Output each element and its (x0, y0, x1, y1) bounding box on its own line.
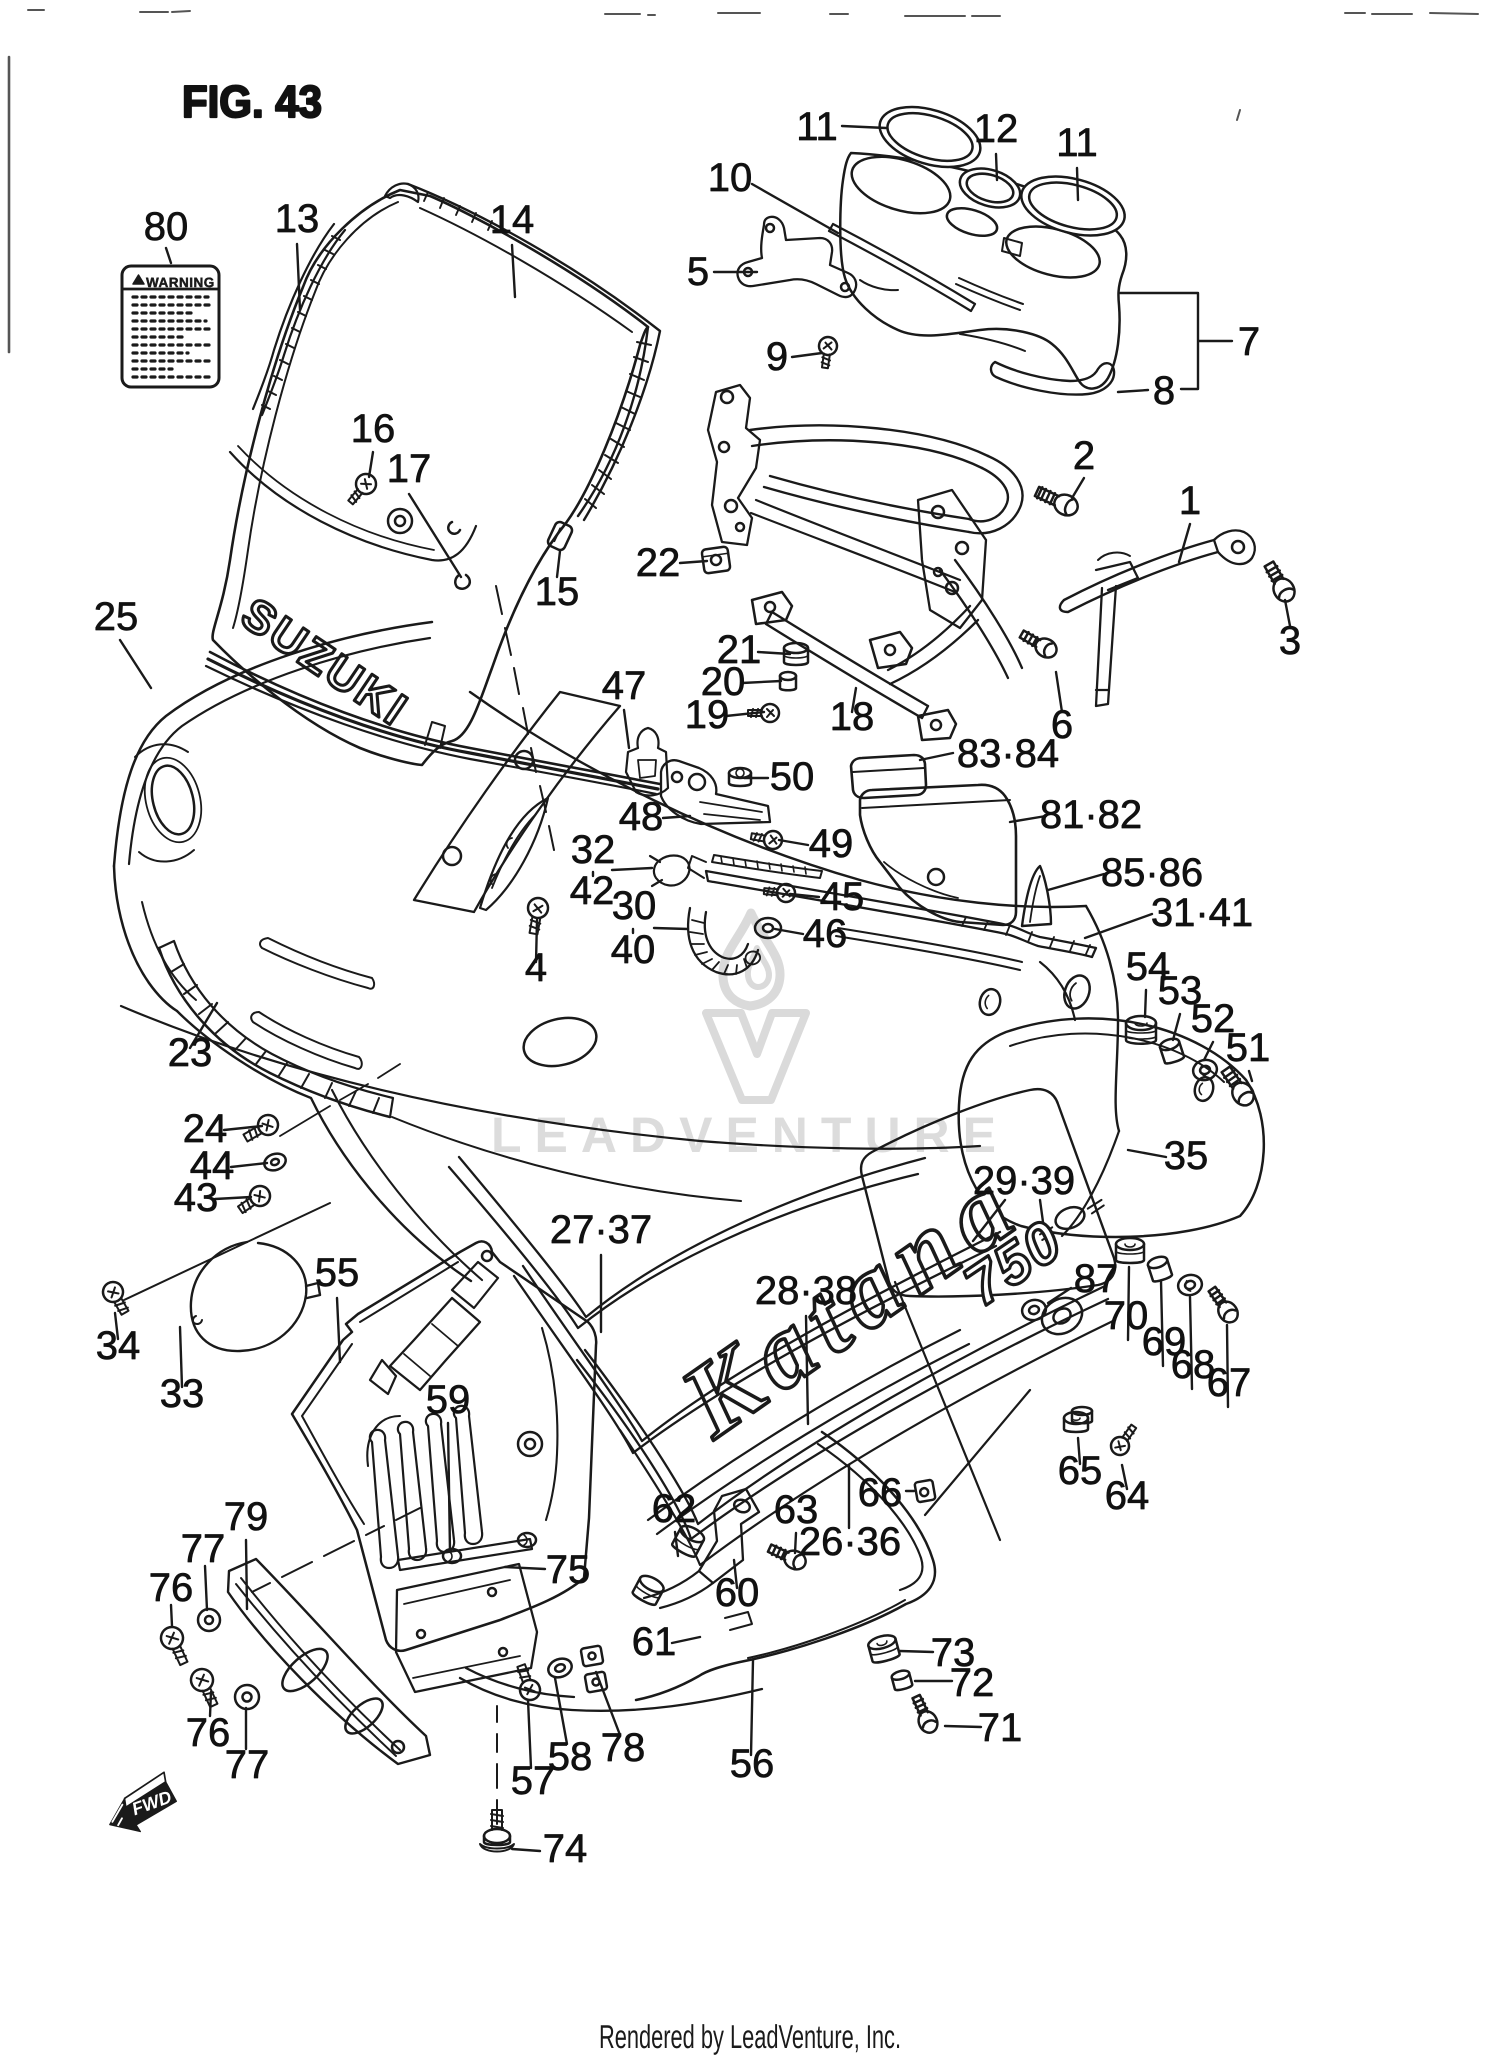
svg-text:72: 72 (950, 1661, 995, 1705)
svg-text:18: 18 (830, 695, 875, 739)
svg-text:71: 71 (978, 1706, 1023, 1750)
svg-text:79: 79 (224, 1495, 269, 1539)
svg-text:81·82: 81·82 (1040, 793, 1142, 837)
svg-text:23: 23 (168, 1031, 213, 1075)
svg-text:29·39: 29·39 (973, 1159, 1075, 1203)
svg-text:17: 17 (387, 447, 432, 491)
svg-text:56: 56 (730, 1742, 775, 1786)
svg-text:32: 32 (571, 828, 616, 872)
svg-text:7: 7 (1238, 320, 1260, 364)
svg-text:49: 49 (809, 822, 854, 866)
svg-text:61: 61 (632, 1620, 677, 1664)
svg-text:83·84: 83·84 (957, 732, 1059, 776)
svg-text:64: 64 (1105, 1474, 1150, 1518)
svg-text:30: 30 (612, 884, 657, 928)
svg-text:Rendered by LeadVenture, Inc.: Rendered by LeadVenture, Inc. (599, 2018, 901, 2055)
svg-text:28·38: 28·38 (755, 1269, 857, 1313)
svg-text:63: 63 (774, 1488, 819, 1532)
svg-text:50: 50 (770, 755, 815, 799)
svg-text:66: 66 (858, 1471, 903, 1515)
svg-text:74: 74 (543, 1827, 588, 1871)
svg-text:5: 5 (687, 250, 709, 294)
svg-text:22: 22 (636, 541, 681, 585)
svg-text:62: 62 (652, 1487, 697, 1531)
svg-text:LEADVENTURE: LEADVENTURE (491, 1107, 1009, 1163)
svg-text:10: 10 (708, 156, 753, 200)
svg-text:35: 35 (1164, 1134, 1209, 1178)
svg-text:78: 78 (601, 1726, 646, 1770)
svg-text:2: 2 (1073, 434, 1095, 478)
svg-text:4: 4 (525, 946, 547, 990)
svg-text:8: 8 (1153, 369, 1175, 413)
svg-text:19: 19 (685, 693, 730, 737)
svg-text:11: 11 (1056, 121, 1098, 165)
svg-text:11: 11 (796, 105, 838, 149)
svg-text:76: 76 (149, 1566, 194, 1610)
svg-text:FIG. 43: FIG. 43 (182, 76, 322, 127)
svg-text:43: 43 (174, 1176, 219, 1220)
svg-text:27·37: 27·37 (550, 1208, 652, 1252)
svg-text:3: 3 (1279, 619, 1301, 663)
svg-text:9: 9 (766, 335, 788, 379)
svg-text:51: 51 (1226, 1026, 1271, 1070)
svg-text:67: 67 (1207, 1361, 1252, 1405)
svg-text:12: 12 (974, 107, 1019, 151)
svg-text:46: 46 (803, 912, 848, 956)
svg-text:15: 15 (535, 570, 580, 614)
svg-text:65: 65 (1058, 1449, 1103, 1493)
svg-text:48: 48 (619, 795, 664, 839)
svg-text:42: 42 (570, 869, 615, 913)
svg-text:1: 1 (1179, 479, 1201, 523)
svg-text:13: 13 (275, 197, 320, 241)
svg-text:85·86: 85·86 (1101, 851, 1203, 895)
svg-text:47: 47 (602, 664, 647, 708)
svg-text:25: 25 (94, 595, 139, 639)
svg-text:60: 60 (715, 1571, 760, 1615)
svg-text:77: 77 (225, 1743, 270, 1787)
svg-text:34: 34 (96, 1324, 141, 1368)
svg-text:55: 55 (315, 1251, 360, 1295)
svg-text:16: 16 (351, 407, 396, 451)
svg-text:33: 33 (160, 1372, 205, 1416)
svg-text:77: 77 (181, 1527, 226, 1571)
svg-text:WARNING: WARNING (146, 275, 215, 290)
svg-text:80: 80 (144, 205, 189, 249)
svg-text:59: 59 (426, 1378, 471, 1422)
svg-text:57: 57 (511, 1759, 556, 1803)
svg-text:14: 14 (490, 198, 535, 242)
svg-text:31·41: 31·41 (1151, 891, 1253, 935)
svg-text:75: 75 (546, 1548, 591, 1592)
svg-text:76: 76 (186, 1711, 231, 1755)
svg-text:40: 40 (611, 928, 656, 972)
